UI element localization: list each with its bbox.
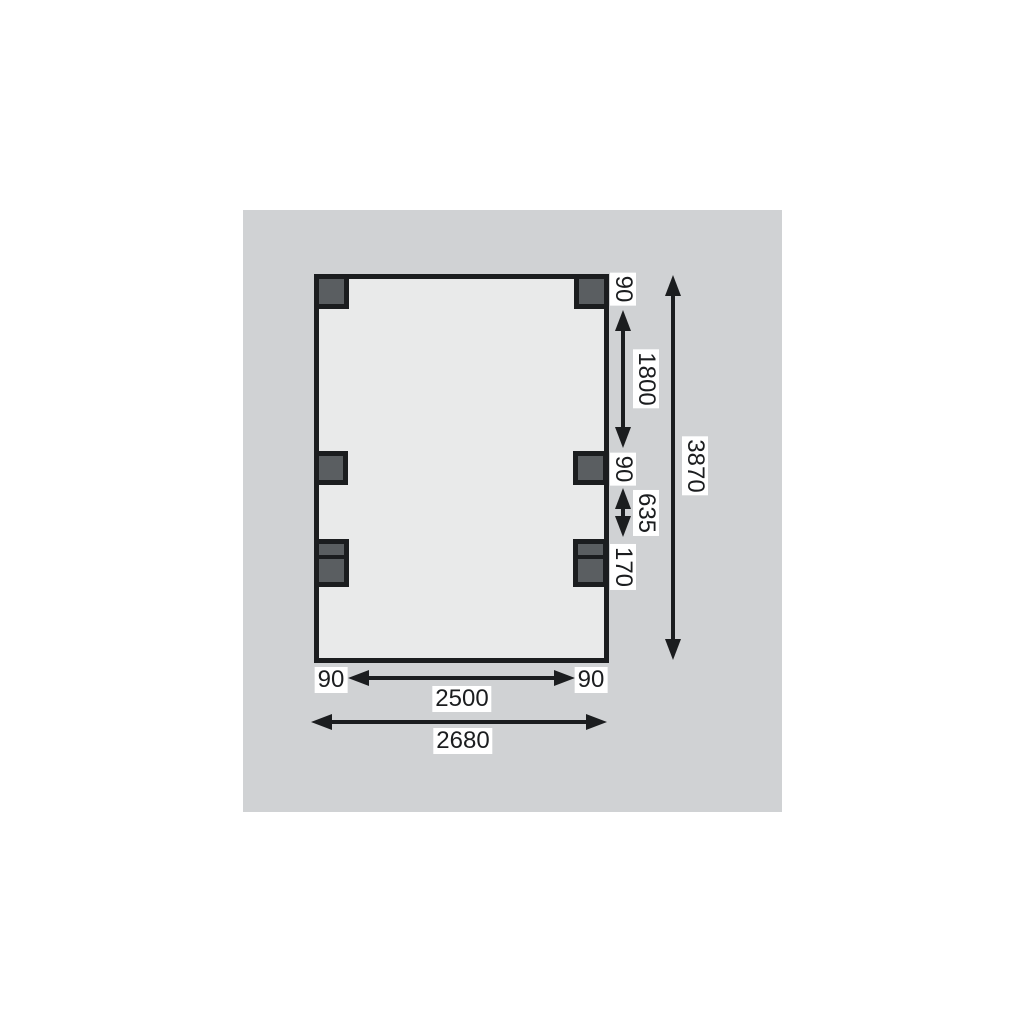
dim-label-post-right: 90 <box>575 667 608 693</box>
dim-label-1800: 1800 <box>633 349 659 408</box>
dim-label-3870: 3870 <box>682 436 708 495</box>
arrowhead-up-icon <box>615 488 631 509</box>
post-top-left <box>314 274 349 309</box>
beam-divider <box>578 555 603 559</box>
arrow-shaft <box>621 331 625 427</box>
arrow-shaft <box>671 296 675 639</box>
post-top-right <box>574 274 609 309</box>
post-mid-right <box>573 451 608 485</box>
floor-plan-outline <box>314 274 609 663</box>
dim-label-post-left: 90 <box>315 667 348 693</box>
arrowhead-right-icon <box>586 714 607 730</box>
post-bottom-right-group <box>573 539 608 587</box>
dim-label-post-top: 90 <box>610 273 636 306</box>
dim-label-2500: 2500 <box>432 686 491 712</box>
dim-arrow-1800 <box>615 310 631 448</box>
arrowhead-left-icon <box>348 670 369 686</box>
arrowhead-left-icon <box>311 714 332 730</box>
post-mid-left <box>314 451 348 485</box>
dim-label-170: 170 <box>610 544 636 590</box>
arrow-shaft <box>621 509 625 516</box>
diagram-canvas: 90 1800 90 635 170 3870 90 90 2500 2680 <box>243 210 782 812</box>
dim-label-635: 635 <box>633 490 659 536</box>
dim-arrow-635 <box>615 488 631 537</box>
beam-divider <box>319 555 344 559</box>
arrowhead-down-icon <box>665 639 681 660</box>
arrowhead-down-icon <box>615 427 631 448</box>
arrowhead-up-icon <box>665 275 681 296</box>
dim-arrow-3870 <box>665 275 681 660</box>
arrow-shaft <box>369 676 554 680</box>
dim-arrow-2500 <box>348 670 575 686</box>
dim-label-post-mid: 90 <box>610 453 636 486</box>
arrowhead-down-icon <box>615 516 631 537</box>
dim-label-2680: 2680 <box>433 728 492 754</box>
arrowhead-right-icon <box>554 670 575 686</box>
page: { "diagram": { "kind": "carport-floor-pl… <box>0 0 1024 1024</box>
post-bottom-left-group <box>314 539 349 587</box>
arrowhead-up-icon <box>615 310 631 331</box>
arrow-shaft <box>332 720 586 724</box>
